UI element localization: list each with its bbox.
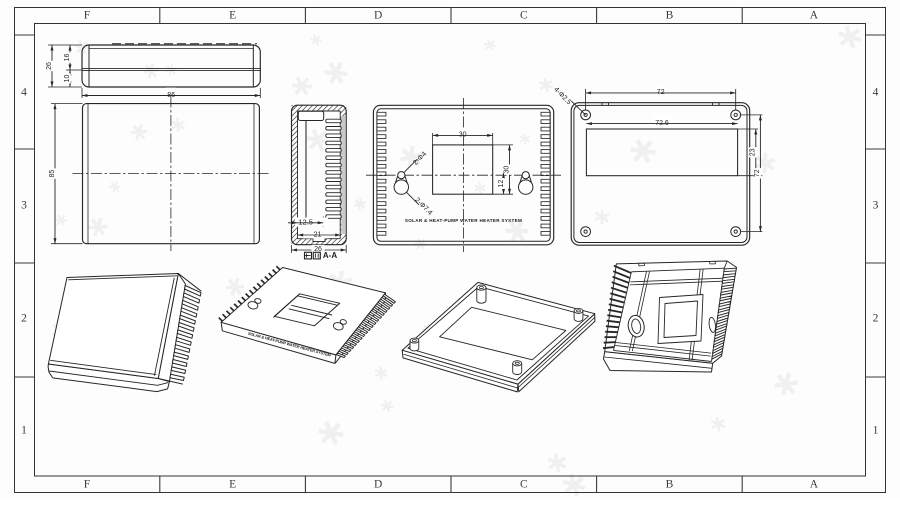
svg-text:E: E (229, 10, 236, 22)
svg-text:85: 85 (49, 170, 56, 178)
svg-text:4: 4 (21, 87, 27, 99)
svg-text:72: 72 (657, 89, 665, 96)
svg-text:26: 26 (46, 62, 53, 70)
svg-text:B: B (666, 479, 674, 491)
svg-text:D: D (374, 479, 382, 491)
svg-text:30: 30 (459, 132, 467, 139)
svg-text:1: 1 (873, 425, 879, 437)
svg-text:12.5: 12.5 (298, 217, 313, 226)
svg-text:F: F (84, 10, 90, 22)
svg-text:12: 12 (498, 180, 505, 188)
svg-text:72: 72 (754, 169, 761, 177)
svg-text:C: C (520, 10, 528, 22)
svg-text:21: 21 (314, 231, 322, 238)
svg-text:23: 23 (750, 148, 757, 156)
svg-text:4: 4 (873, 87, 879, 99)
svg-text:3: 3 (873, 200, 879, 212)
svg-text:30: 30 (503, 166, 510, 174)
svg-text:B: B (666, 10, 674, 22)
svg-text:A: A (810, 10, 819, 22)
svg-text:2: 2 (21, 313, 27, 325)
svg-text:D: D (374, 10, 382, 22)
svg-text:F: F (84, 479, 90, 491)
svg-text:C: C (520, 479, 528, 491)
svg-text:E: E (229, 479, 236, 491)
svg-text:3: 3 (21, 200, 27, 212)
svg-text:10: 10 (64, 75, 71, 83)
svg-text:A-A: A-A (323, 251, 337, 260)
svg-text:SOLAR & HEAT-PUMP WATER HEATER: SOLAR & HEAT-PUMP WATER HEATER SYSTEM (405, 218, 522, 223)
svg-text:72.6: 72.6 (655, 120, 669, 127)
svg-text:16: 16 (64, 54, 71, 62)
svg-text:1: 1 (21, 425, 27, 437)
svg-text:A: A (810, 479, 819, 491)
svg-text:2: 2 (873, 313, 879, 325)
